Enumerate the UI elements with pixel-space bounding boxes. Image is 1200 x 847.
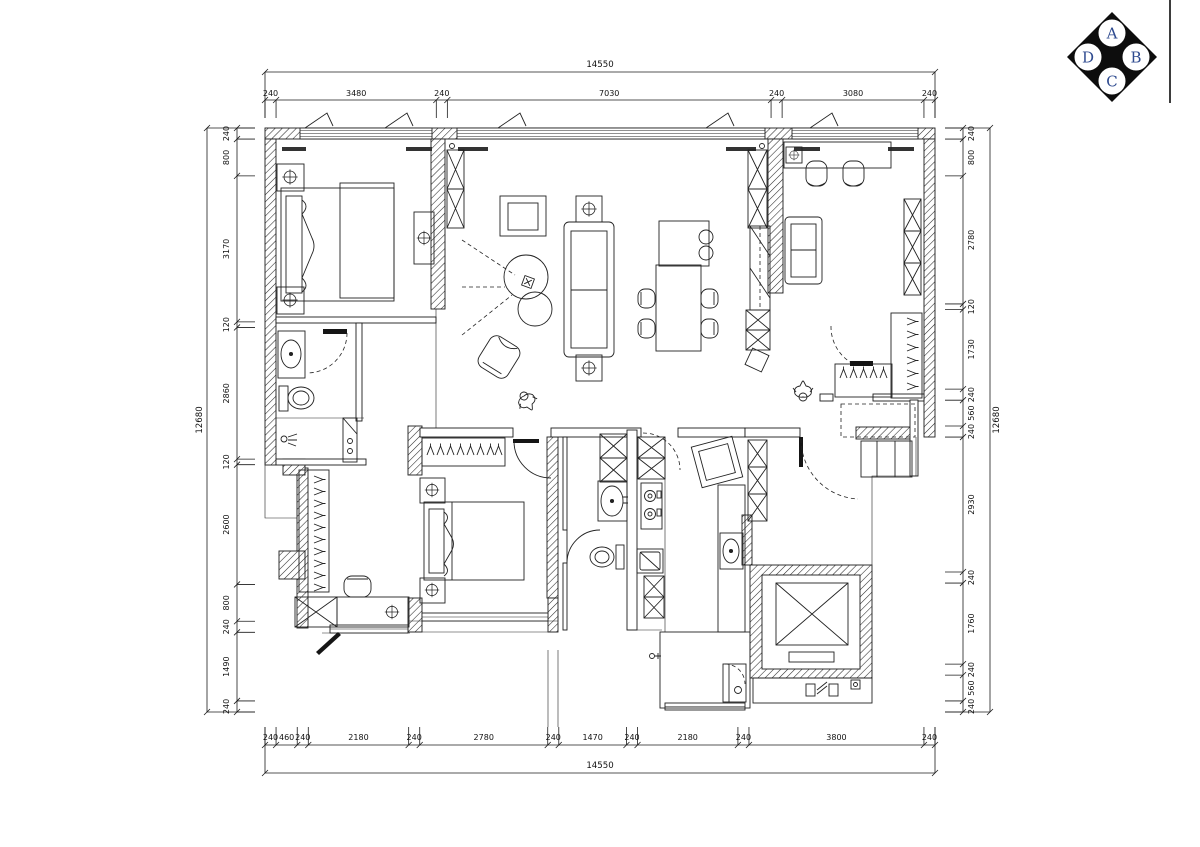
dimension-label: 2860: [222, 383, 231, 403]
window-bedroom2: [422, 613, 548, 621]
dimension-label: 240: [967, 424, 976, 439]
dimension-label: 240: [736, 733, 751, 742]
door-leaf: [850, 361, 873, 366]
dimension-label: 240: [967, 387, 976, 402]
dimension-label: 240: [624, 733, 639, 742]
dimension-label: 2780: [967, 230, 976, 250]
compass-label-d: D: [1082, 49, 1094, 67]
dimension-label: 1730: [967, 339, 976, 359]
compass-label-a: A: [1106, 25, 1118, 43]
door-leaf: [513, 439, 539, 443]
dimension-label: 2600: [222, 514, 231, 534]
dimension-label: 800: [967, 150, 976, 165]
dimension-label: 14550: [586, 761, 613, 771]
dimension-label: 240: [967, 662, 976, 677]
window-study: [792, 128, 918, 139]
dimension-label: 3080: [843, 89, 863, 98]
window-living: [457, 128, 765, 139]
dimension-label: 1760: [967, 613, 976, 633]
dimension-label: 240: [769, 89, 784, 98]
dimension-label: 2180: [678, 733, 698, 742]
dimension-label: 460: [279, 733, 294, 742]
dimension-label: 2780: [474, 733, 494, 742]
compass-label-b: B: [1130, 49, 1141, 67]
dimension-label: 2930: [967, 494, 976, 514]
dimension-label: 3170: [222, 239, 231, 259]
dimension-label: 1490: [222, 656, 231, 676]
dimension-label: 7030: [599, 89, 619, 98]
dimension-label: 120: [967, 299, 976, 314]
dimension-label: 3480: [346, 89, 366, 98]
dimension-label: 240: [222, 619, 231, 634]
dimension-label: 12680: [195, 406, 205, 433]
dimension-label: 240: [434, 89, 449, 98]
dimension-label: 3800: [826, 733, 846, 742]
dimension-label: 2180: [348, 733, 368, 742]
window-utility: [665, 703, 745, 710]
dimension-label: 560: [967, 680, 976, 695]
dimension-label: 240: [967, 570, 976, 585]
dimension-label: 12680: [992, 406, 1002, 433]
dimension-label: 240: [546, 733, 561, 742]
dimension-label: 120: [222, 454, 231, 469]
floor-plan-canvas: A B C D 24034802407030240308024014550240…: [0, 0, 1200, 847]
dimension-label: 120: [222, 317, 231, 332]
window-bedroom1: [300, 128, 432, 139]
dimension-label: 240: [295, 733, 310, 742]
dimension-label: 14550: [586, 60, 613, 70]
dimension-label: 240: [407, 733, 422, 742]
dimension-label: 1470: [582, 733, 602, 742]
floor-plan-drawing: A B C D 24034802407030240308024014550240…: [0, 0, 1200, 847]
background: [0, 0, 1200, 847]
dimension-label: 800: [222, 595, 231, 610]
door-leaf: [323, 329, 347, 334]
compass-label-c: C: [1106, 73, 1117, 91]
dimension-label: 800: [222, 150, 231, 165]
window-dressing: [330, 625, 408, 633]
dimension-label: 560: [967, 405, 976, 420]
